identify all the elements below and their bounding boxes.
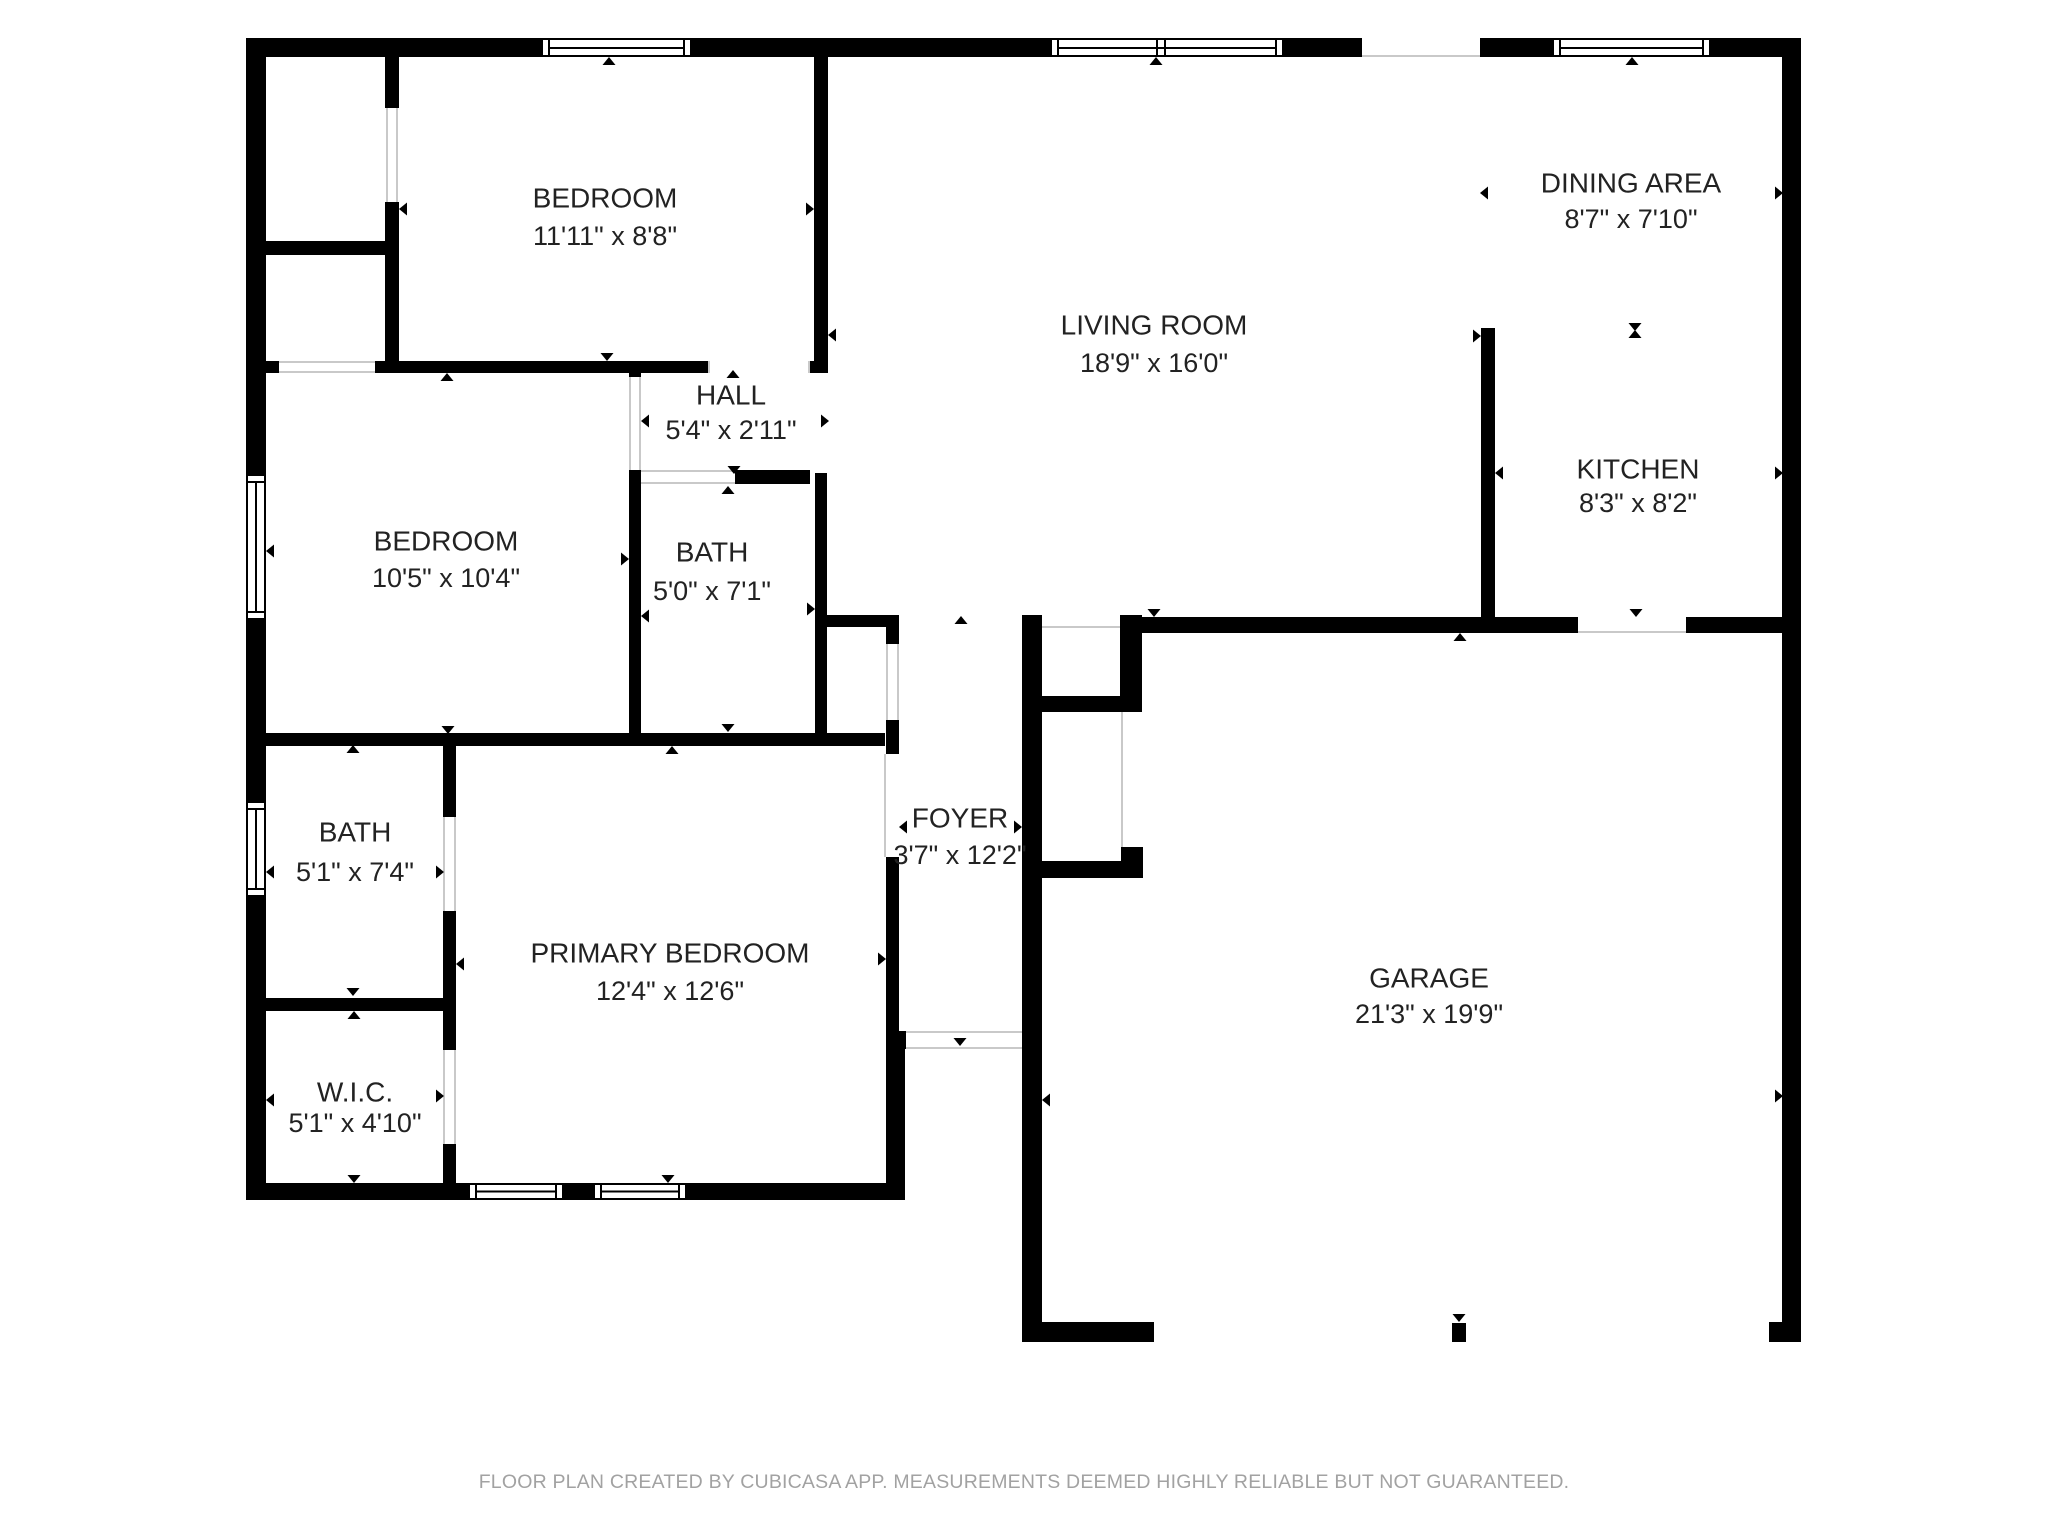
svg-text:5'0" x 7'1": 5'0" x 7'1" [653, 576, 771, 606]
svg-text:HALL: HALL [696, 379, 766, 410]
svg-text:8'3" x 8'2": 8'3" x 8'2" [1579, 488, 1697, 518]
svg-text:5'1" x 7'4": 5'1" x 7'4" [296, 857, 414, 887]
svg-text:LIVING ROOM: LIVING ROOM [1061, 309, 1248, 340]
svg-text:PRIMARY BEDROOM: PRIMARY BEDROOM [530, 937, 809, 968]
svg-text:KITCHEN: KITCHEN [1577, 453, 1700, 484]
svg-text:FOYER: FOYER [912, 802, 1008, 833]
svg-text:BEDROOM: BEDROOM [374, 525, 519, 556]
svg-text:5'1" x 4'10": 5'1" x 4'10" [288, 1108, 421, 1138]
svg-text:W.I.C.: W.I.C. [317, 1076, 393, 1107]
svg-text:11'11" x 8'8": 11'11" x 8'8" [533, 221, 677, 251]
svg-text:8'7" x 7'10": 8'7" x 7'10" [1564, 204, 1697, 234]
svg-text:BEDROOM: BEDROOM [533, 182, 678, 213]
svg-text:BATH: BATH [319, 816, 392, 847]
svg-text:10'5" x 10'4": 10'5" x 10'4" [372, 563, 520, 593]
svg-text:DINING AREA: DINING AREA [1541, 167, 1722, 198]
svg-text:18'9" x 16'0": 18'9" x 16'0" [1080, 348, 1228, 378]
svg-text:BATH: BATH [676, 536, 749, 567]
svg-text:5'4" x 2'11": 5'4" x 2'11" [665, 415, 796, 445]
svg-text:21'3" x 19'9": 21'3" x 19'9" [1355, 999, 1503, 1029]
svg-text:FLOOR PLAN CREATED BY CUBICASA: FLOOR PLAN CREATED BY CUBICASA APP. MEAS… [479, 1471, 1570, 1493]
svg-text:3'7" x 12'2": 3'7" x 12'2" [893, 840, 1026, 870]
svg-text:GARAGE: GARAGE [1369, 962, 1489, 993]
svg-text:12'4" x 12'6": 12'4" x 12'6" [596, 976, 744, 1006]
